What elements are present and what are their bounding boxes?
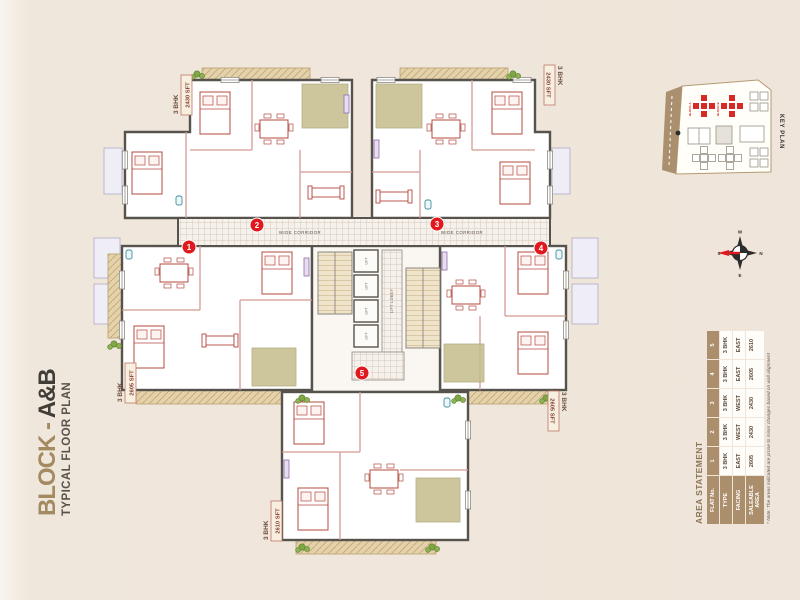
- bed-symbol: [134, 326, 164, 368]
- lift-label: LIFT: [365, 333, 369, 340]
- flat-number-cell: 5: [707, 331, 719, 359]
- unit-area-value: 2610 SFT: [276, 508, 282, 534]
- flat-number-cell: 1: [707, 447, 719, 475]
- page-title-emphasis: A&B: [34, 369, 61, 418]
- bed-symbol: [200, 92, 230, 134]
- bed-symbol: [518, 332, 548, 374]
- area-cell: 2610: [746, 331, 764, 359]
- page-subtitle: TYPICAL FLOOR PLAN: [61, 356, 73, 516]
- window-symbol: [563, 271, 568, 289]
- page-title: BLOCK - A&B: [36, 356, 60, 516]
- page-title-prefix: BLOCK -: [34, 418, 61, 516]
- unit-label-middle-right: 3 BHK 2605 SFT: [548, 391, 567, 431]
- key-plan: BLOCK A BLOCK B KEY PLAN: [662, 80, 784, 174]
- corridor: [178, 218, 550, 246]
- floor-plan-canvas: WIDE CORRIDOR WIDE CORRIDOR: [0, 0, 800, 600]
- unit-type-label: 3 BHK: [263, 520, 270, 540]
- window-symbol: [221, 77, 239, 82]
- toilet-symbol: [176, 196, 182, 205]
- area-cell: 2605: [746, 360, 764, 388]
- unit-area-value: 2605 SFT: [130, 370, 136, 396]
- area-cell: 2430: [746, 389, 764, 417]
- flat-number-cell: 3: [707, 389, 719, 417]
- bed-symbol: [294, 402, 324, 444]
- unit-type-label: 3 BHK: [173, 94, 180, 114]
- unit-label-top-right: 3 BHK 2430 SFT: [544, 65, 563, 105]
- sofa-symbol: [308, 186, 344, 199]
- stair-left: [318, 252, 352, 314]
- window-symbol: [377, 77, 395, 82]
- lift-label: LIFT: [365, 283, 369, 290]
- sofa-symbol: [202, 334, 238, 347]
- window-symbol: [321, 77, 339, 82]
- key-plan-label: KEY PLAN: [778, 114, 784, 149]
- window-symbol: [465, 421, 470, 439]
- toilet-symbol: [444, 398, 450, 407]
- window-symbol: [547, 151, 552, 169]
- window-symbol: [122, 186, 127, 204]
- toilet-symbol: [425, 200, 431, 209]
- compass-icon: W N E S: [717, 230, 762, 279]
- window-symbol: [119, 321, 124, 339]
- lift-lobby-label: LIFT LOBBY: [390, 289, 394, 314]
- type-cell: 3 BHK: [720, 331, 732, 359]
- compass-bottom-letter: E: [738, 273, 741, 278]
- bed-symbol: [500, 162, 530, 204]
- key-plan-block-a-label: BLOCK A: [688, 102, 692, 116]
- window-symbol: [465, 491, 470, 509]
- area-statement-note: * Note: The areas indicated are prone to…: [767, 332, 772, 524]
- unit-area-value: 2430 SFT: [186, 82, 192, 108]
- row-header-facing: FACING: [733, 476, 745, 524]
- window-symbol: [563, 321, 568, 339]
- col-header-flat-no: FLAT No.: [707, 476, 719, 524]
- flat-badge-5-number: 5: [360, 369, 365, 378]
- facing-cell: WEST: [733, 389, 745, 417]
- flat-number-cell: 2: [707, 418, 719, 446]
- area-statement: AREA STATEMENT FLAT No. 1 2 3 4 5 TYPE 3…: [694, 332, 772, 524]
- unit-label-bottom: 3 BHK 2610 SFT: [263, 501, 282, 541]
- unit-area-value: 2430 SFT: [545, 72, 551, 98]
- stair-right: [406, 268, 440, 348]
- flat-badge-1: 1: [182, 240, 196, 254]
- key-plan-block-b-label: BLOCK B: [716, 102, 720, 116]
- key-plan-entry-dot: [676, 131, 681, 136]
- flat-badge-3: 3: [430, 217, 444, 231]
- window-symbol: [122, 151, 127, 169]
- unit-type-label: 3 BHK: [556, 66, 563, 86]
- toilet-symbol: [126, 250, 132, 259]
- flat-number-cell: 4: [707, 360, 719, 388]
- lift-label: LIFT: [365, 308, 369, 315]
- unit-area-value: 2605 SFT: [549, 398, 555, 424]
- lift-label: LIFT: [365, 258, 369, 265]
- area-cell: 2605: [746, 447, 764, 475]
- flat-badge-4-number: 4: [539, 244, 544, 253]
- unit-label-middle-left: 3 BHK 2605 SFT: [117, 363, 136, 403]
- type-cell: 3 BHK: [720, 389, 732, 417]
- row-header-type: TYPE: [720, 476, 732, 524]
- facing-cell: EAST: [733, 360, 745, 388]
- unit-type-label: 3 BHK: [560, 392, 567, 412]
- compass-top-letter: W: [738, 230, 743, 235]
- toilet-symbol: [556, 250, 562, 259]
- bed-symbol: [518, 252, 548, 294]
- area-statement-title: AREA STATEMENT: [694, 332, 704, 524]
- lift-lobby: LIFT LOBBY: [382, 250, 402, 352]
- corridor-label: WIDE CORRIDOR: [441, 230, 483, 235]
- wardrobe-symbol: [374, 140, 379, 158]
- flat-badge-3-number: 3: [435, 220, 440, 229]
- window-symbol: [547, 186, 552, 204]
- compass-right-letter: N: [759, 251, 762, 256]
- window-symbol: [119, 271, 124, 289]
- window-symbol: [513, 77, 531, 82]
- page: WIDE CORRIDOR WIDE CORRIDOR: [0, 0, 800, 600]
- compass-left-letter: S: [717, 251, 720, 256]
- wardrobe-symbol: [284, 460, 289, 478]
- unit-type-label: 3 BHK: [117, 382, 124, 402]
- plant-symbol: [108, 341, 122, 350]
- flat-badge-2: 2: [250, 218, 264, 232]
- facing-cell: WEST: [733, 418, 745, 446]
- unit-label-top-left: 3 BHK 2430 SFT: [173, 75, 192, 115]
- row-header-saleable-area: SALEABLE AREA: [746, 476, 764, 524]
- corridor-label: WIDE CORRIDOR: [279, 230, 321, 235]
- bed-symbol: [262, 252, 292, 294]
- bed-symbol: [298, 488, 328, 530]
- type-cell: 3 BHK: [720, 447, 732, 475]
- type-cell: 3 BHK: [720, 360, 732, 388]
- page-title-block: BLOCK - A&B TYPICAL FLOOR PLAN: [36, 356, 73, 516]
- flat-badge-1-number: 1: [187, 243, 192, 252]
- flat-badge-2-number: 2: [255, 221, 260, 230]
- area-cell: 2430: [746, 418, 764, 446]
- area-statement-table: FLAT No. 1 2 3 4 5 TYPE 3 BHK 3 BHK 3 BH…: [707, 332, 764, 524]
- bed-symbol: [492, 92, 522, 134]
- facing-cell: EAST: [733, 447, 745, 475]
- wardrobe-symbol: [442, 252, 447, 270]
- facing-cell: EAST: [733, 331, 745, 359]
- flat-badge-5: 5: [355, 366, 369, 380]
- wardrobe-symbol: [304, 258, 309, 276]
- type-cell: 3 BHK: [720, 418, 732, 446]
- wardrobe-symbol: [344, 95, 349, 113]
- sofa-symbol: [376, 190, 412, 203]
- flat-badge-4: 4: [534, 241, 548, 255]
- bed-symbol: [132, 152, 162, 194]
